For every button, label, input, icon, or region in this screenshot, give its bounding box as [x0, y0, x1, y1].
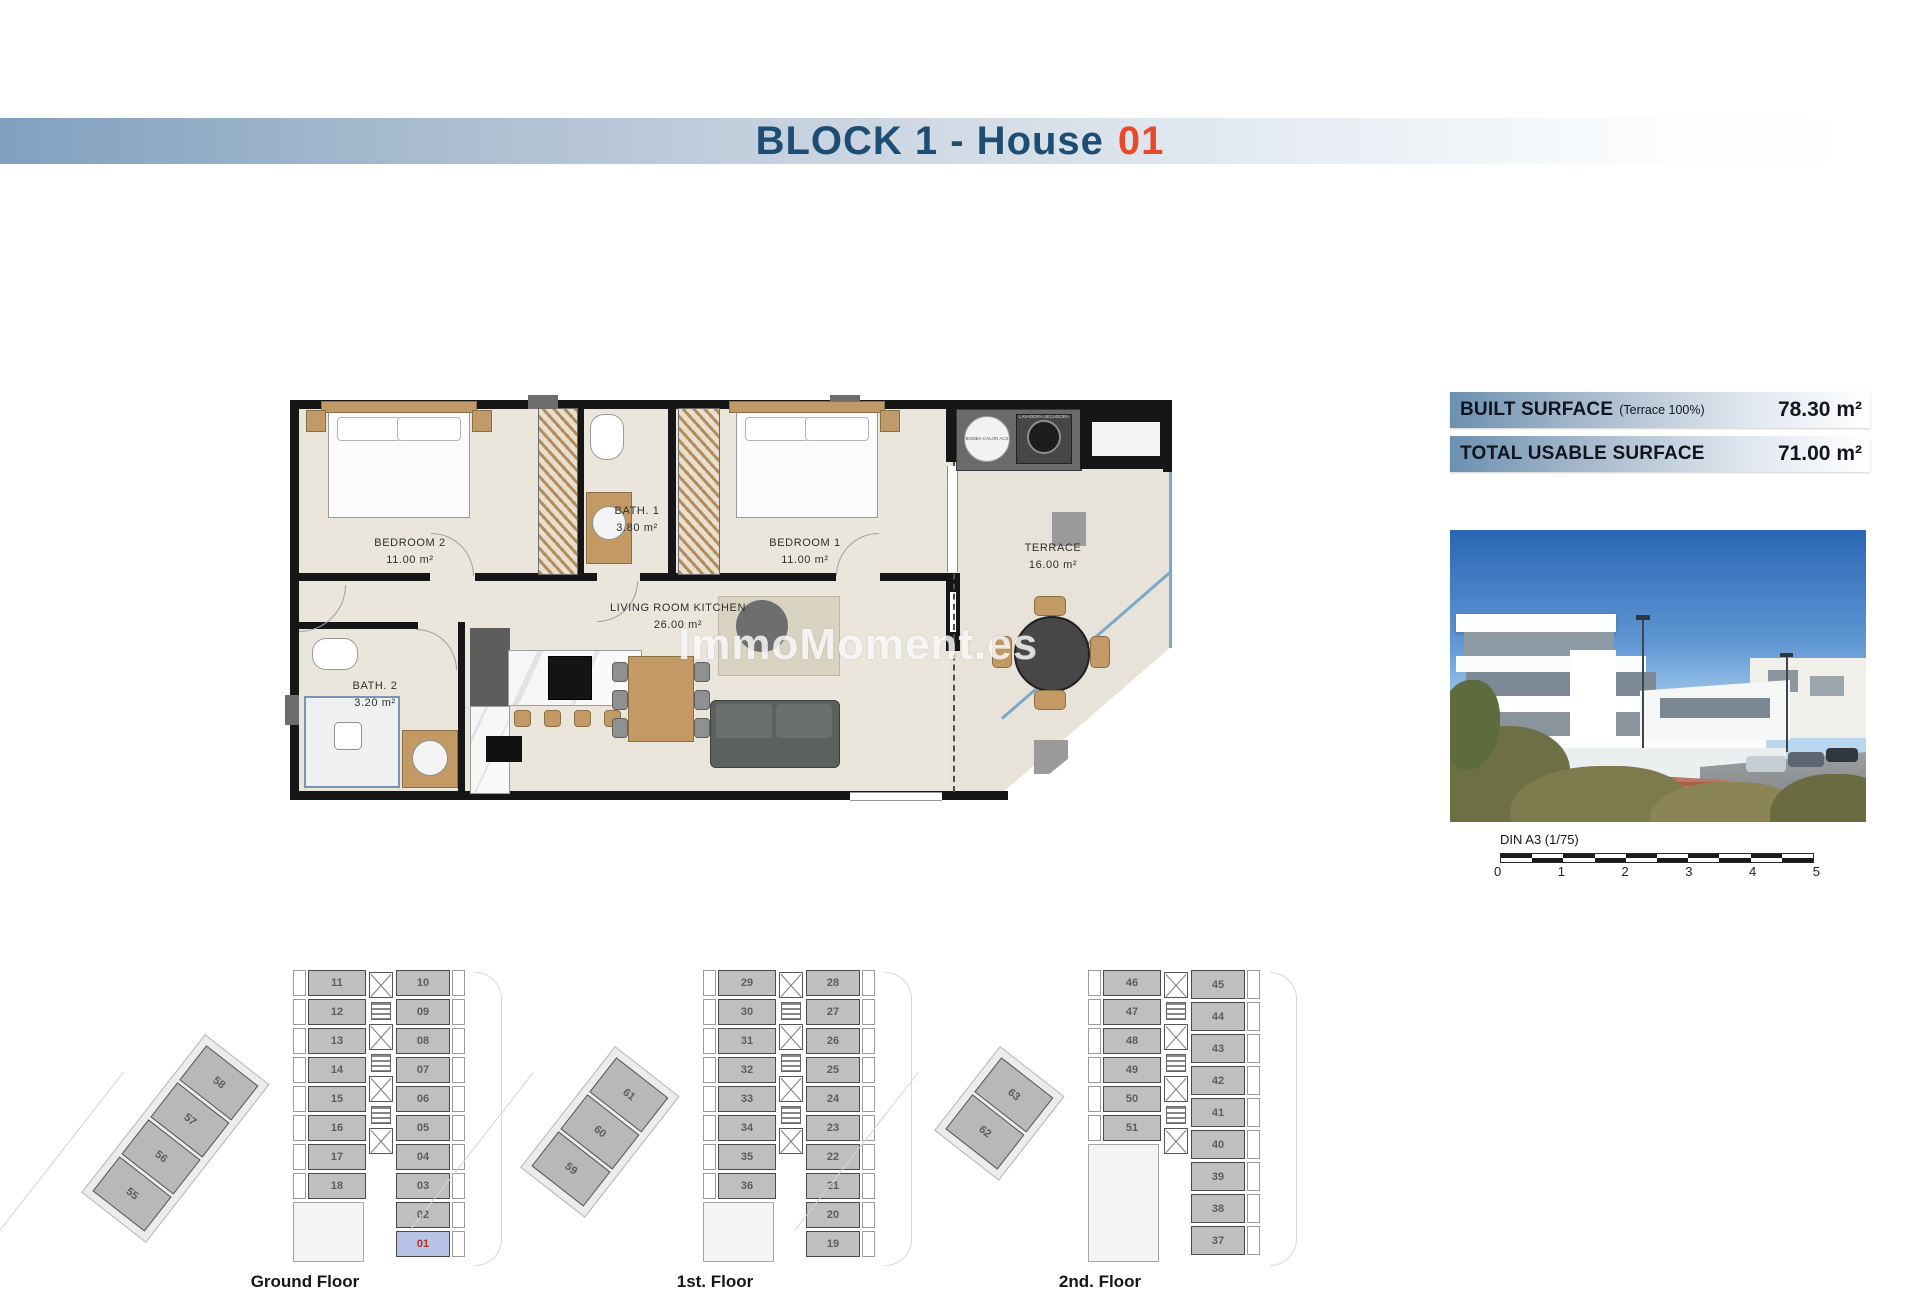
unit-cell[interactable]: 16	[308, 1115, 366, 1141]
unit-row: 13	[293, 1028, 366, 1054]
terrace-stub	[862, 1028, 875, 1054]
terrace-stub	[1247, 1002, 1260, 1031]
stairs-icon	[781, 1106, 801, 1124]
unit-cell[interactable]: 29	[718, 970, 776, 996]
room-name: BATH. 1	[577, 503, 697, 520]
balcony-stub	[293, 1057, 306, 1083]
unit-row: 28	[806, 970, 875, 996]
terrace-stub	[862, 1173, 875, 1199]
elevator-icon	[369, 972, 393, 998]
left-unit-column: 1112131415161718	[293, 970, 366, 1262]
terrace-stub	[452, 1231, 465, 1257]
unit-row: 07	[396, 1057, 465, 1083]
photo-rear-window	[1810, 676, 1844, 696]
built-surface-label: BUILT SURFACE	[1450, 399, 1613, 421]
unit-cell[interactable]: 36	[718, 1173, 776, 1199]
wall-terrace-top	[946, 400, 956, 462]
built-surface-note: (Terrace 100%)	[1619, 403, 1704, 417]
scale-label: DIN A3 (1/75)	[1500, 832, 1579, 847]
chair	[612, 690, 628, 710]
terrace-stub	[452, 1086, 465, 1112]
stairs-icon	[1166, 1106, 1186, 1124]
photo-lamp-pole	[1786, 656, 1788, 752]
unit-row: 34	[703, 1115, 776, 1141]
terrace-stub	[862, 1202, 875, 1228]
toilet-bath2	[312, 638, 358, 670]
page-title-text: BLOCK 1 - House	[756, 119, 1104, 163]
main-floor-plan: BOMBA CALOR ACS LAVADORA SECADORA BEDROO…	[290, 400, 1180, 800]
sliding-door	[947, 466, 958, 572]
unit-row: 29	[703, 970, 776, 996]
usable-surface-label: TOTAL USABLE SURFACE	[1450, 443, 1705, 465]
balcony-stub	[703, 970, 716, 996]
terrace-stub	[1247, 1066, 1260, 1095]
unit-row: 47	[1088, 999, 1161, 1025]
unit-cell[interactable]: 01	[396, 1231, 450, 1257]
unit-row: 42	[1191, 1066, 1260, 1095]
ruler-segment	[1595, 858, 1626, 862]
unit-row: 05	[396, 1115, 465, 1141]
unit-cell[interactable]: 43	[1191, 1034, 1245, 1063]
wardrobe-bedroom1	[678, 408, 720, 575]
room-name: BEDROOM 2	[330, 535, 490, 552]
sink-bath2	[412, 740, 448, 776]
terrace-chair	[1090, 636, 1110, 668]
photo-car	[1788, 752, 1824, 767]
unit-row: 25	[806, 1057, 875, 1083]
bed-pillow	[805, 417, 869, 441]
balcony-stub	[293, 970, 306, 996]
fridge	[470, 628, 510, 708]
unit-row: 50	[1088, 1086, 1161, 1112]
unit-cell[interactable]: 21	[806, 1173, 860, 1199]
terrace-stub	[862, 1086, 875, 1112]
balcony-stub	[293, 1144, 306, 1170]
unit-row: 16	[293, 1115, 366, 1141]
chair	[612, 662, 628, 682]
built-surface-bar: BUILT SURFACE (Terrace 100%) 78.30 m²	[1450, 392, 1870, 428]
unit-row: 39	[1191, 1162, 1260, 1191]
unit-row: 10	[396, 970, 465, 996]
top-margin	[0, 0, 1920, 118]
balcony-stub	[703, 999, 716, 1025]
photo-lamp-head	[1636, 615, 1650, 620]
unit-row: 46	[1088, 970, 1161, 996]
scale-ruler-ticks: 012345	[1494, 864, 1820, 879]
sofa-cushion	[716, 704, 772, 738]
terrace-stub	[1247, 1034, 1260, 1063]
entrance-structure	[1088, 1144, 1159, 1262]
unit-cell[interactable]: 30	[718, 999, 776, 1025]
terrace-stub	[452, 970, 465, 996]
unit-cell[interactable]: 23	[806, 1115, 860, 1141]
bed-pillow	[397, 417, 461, 441]
unit-cell[interactable]: 38	[1191, 1194, 1245, 1223]
stairs-icon	[371, 1054, 391, 1072]
room-area: 11.00 m²	[330, 552, 490, 569]
unit-cell[interactable]: 06	[396, 1086, 450, 1112]
unit-cell[interactable]: 41	[1191, 1098, 1245, 1127]
stairs-icon	[781, 1054, 801, 1072]
floor-central-block: 464748495051454443424140393837	[1088, 970, 1260, 1262]
unit-row: 27	[806, 999, 875, 1025]
unit-row: 15	[293, 1086, 366, 1112]
unit-cell[interactable]: 35	[718, 1144, 776, 1170]
unit-cell[interactable]: 46	[1103, 970, 1161, 996]
wall-bath1-right	[668, 400, 676, 581]
bed-pillow	[337, 417, 401, 441]
unit-row: 18	[293, 1173, 366, 1199]
unit-cell[interactable]: 12	[308, 999, 366, 1025]
core-shaft	[779, 970, 803, 1262]
terrace-stub	[452, 1057, 465, 1083]
wall-bedrooms	[290, 573, 430, 581]
stool	[544, 710, 561, 727]
elevator-icon	[369, 1128, 393, 1154]
unit-cell[interactable]: 50	[1103, 1086, 1161, 1112]
unit-cell[interactable]: 44	[1191, 1002, 1245, 1031]
right-unit-column: 454443424140393837	[1191, 970, 1260, 1262]
unit-row: 26	[806, 1028, 875, 1054]
washer-dryer: LAVADORA SECADORA	[1016, 414, 1072, 464]
room-area: 3.20 m²	[315, 695, 435, 712]
unit-row: 45	[1191, 970, 1260, 999]
left-unit-column: 2930313233343536	[703, 970, 776, 1262]
wall-bedrooms	[880, 573, 954, 581]
photo-lamp-pole	[1642, 618, 1644, 748]
nightstand	[306, 410, 326, 432]
floor-wing: 616059	[520, 1046, 679, 1218]
balcony-stub	[703, 1144, 716, 1170]
terrace-stub	[862, 970, 875, 996]
bed-headboard	[321, 401, 477, 413]
balcony-stub	[293, 999, 306, 1025]
elevator-icon	[369, 1076, 393, 1102]
core-shaft	[1164, 970, 1188, 1262]
room-area: 16.00 m²	[973, 557, 1133, 574]
ruler-segment	[1657, 858, 1688, 862]
balcony-stub	[1088, 970, 1101, 996]
stairs-icon	[371, 1106, 391, 1124]
unit-row: 37	[1191, 1226, 1260, 1255]
unit-row: 20	[806, 1202, 875, 1228]
room-name: TERRACE	[973, 540, 1133, 557]
photo-car	[1826, 748, 1858, 762]
nightstand	[880, 410, 900, 432]
floor-plan-ground: 5857565511121314151617181009080706050403…	[105, 962, 505, 1292]
unit-row: 31	[703, 1028, 776, 1054]
unit-cell[interactable]: 10	[396, 970, 450, 996]
stairs-icon	[371, 1002, 391, 1020]
unit-cell[interactable]: 27	[806, 999, 860, 1025]
unit-cell[interactable]: 31	[718, 1028, 776, 1054]
unit-row: 02	[396, 1202, 465, 1228]
photo-terrace-glass	[1660, 698, 1770, 718]
unit-cell[interactable]: 08	[396, 1028, 450, 1054]
unit-cell[interactable]: 39	[1191, 1162, 1245, 1191]
wall-bath2-right	[458, 622, 465, 792]
balcony-stub	[1088, 999, 1101, 1025]
unit-cell[interactable]: 51	[1103, 1115, 1161, 1141]
unit-row: 17	[293, 1144, 366, 1170]
stool	[574, 710, 591, 727]
unit-cell[interactable]: 49	[1103, 1057, 1161, 1083]
terrace-pillar	[1034, 740, 1068, 774]
floor-wing: 58575655	[81, 1034, 269, 1243]
wall-left	[290, 400, 299, 800]
terrace-stub	[452, 1028, 465, 1054]
unit-cell[interactable]: 34	[718, 1115, 776, 1141]
elevator-icon	[369, 1024, 393, 1050]
unit-row: 09	[396, 999, 465, 1025]
header-band: BLOCK 1 - House01	[0, 118, 1920, 164]
terrace-stub	[1247, 1226, 1260, 1255]
page: { "header": { "title": "BLOCK 1 - House"…	[0, 0, 1920, 1280]
elevator-icon	[1164, 1076, 1188, 1102]
cooktop	[548, 656, 592, 700]
floor-plan-second: 63624647484950514544434241403938372nd. F…	[900, 962, 1300, 1292]
left-unit-column: 464748495051	[1088, 970, 1161, 1262]
unit-row: 01	[396, 1231, 465, 1257]
watermark: ImmoMoment.es	[678, 620, 1038, 670]
floor-label: Ground Floor	[105, 1272, 505, 1292]
floor-central-block: 111213141516171810090807060504030201	[293, 970, 465, 1262]
elevator-icon	[779, 1128, 803, 1154]
stool	[514, 710, 531, 727]
ruler-segment	[1626, 858, 1657, 862]
right-unit-column: 10090807060504030201	[396, 970, 465, 1262]
stairs-icon	[1166, 1002, 1186, 1020]
core-shaft	[369, 970, 393, 1262]
unit-cell[interactable]: 11	[308, 970, 366, 996]
unit-row: 22	[806, 1144, 875, 1170]
ruler-tick: 3	[1685, 864, 1692, 879]
elevator-icon	[779, 972, 803, 998]
unit-row: 06	[396, 1086, 465, 1112]
unit-row: 43	[1191, 1034, 1260, 1063]
photo-roof-slab	[1456, 614, 1616, 632]
window	[850, 792, 942, 801]
site-boundary-arc	[1270, 972, 1297, 1266]
unit-row: 24	[806, 1086, 875, 1112]
chair	[694, 718, 710, 738]
elevator-icon	[1164, 972, 1188, 998]
terrace-stub	[1247, 970, 1260, 999]
room-label-bath1: BATH. 1 3.80 m²	[577, 503, 697, 537]
elevator-icon	[779, 1024, 803, 1050]
page-title: BLOCK 1 - House01	[756, 118, 1165, 164]
unit-row: 21	[806, 1173, 875, 1199]
bed-headboard	[729, 401, 885, 413]
ruler-tick: 4	[1749, 864, 1756, 879]
photo-slab	[1456, 656, 1646, 672]
ruler-segment	[1501, 858, 1532, 862]
terrace-stub	[862, 1057, 875, 1083]
page-title-number: 01	[1118, 119, 1165, 163]
room-label-bath2: BATH. 2 3.20 m²	[315, 678, 435, 712]
unit-row: 40	[1191, 1130, 1260, 1159]
balcony-stub	[703, 1028, 716, 1054]
sofa-cushion	[776, 704, 832, 738]
washer-door	[1027, 420, 1061, 454]
bed-bedroom1	[736, 410, 878, 518]
chair	[694, 690, 710, 710]
room-name: BATH. 2	[315, 678, 435, 695]
closet-window	[1092, 422, 1160, 456]
floor-central-block: 293031323334353628272625242322212019	[703, 970, 875, 1262]
photo-lamp-head	[1780, 653, 1793, 657]
terrace-stub	[1247, 1194, 1260, 1223]
balcony-stub	[293, 1173, 306, 1199]
wardrobe-bedroom2	[538, 408, 578, 575]
unit-cell[interactable]: 47	[1103, 999, 1161, 1025]
ruler-segment	[1532, 858, 1563, 862]
stairs-icon	[1166, 1054, 1186, 1072]
terrace-glass-right	[1169, 470, 1172, 648]
ruler-segment	[1688, 858, 1719, 862]
shower-drain	[334, 722, 362, 750]
balcony-stub	[293, 1028, 306, 1054]
balcony-stub	[293, 1115, 306, 1141]
unit-cell[interactable]: 40	[1191, 1130, 1245, 1159]
ruler-segment	[1563, 858, 1594, 862]
nightstand	[472, 410, 492, 432]
unit-row: 44	[1191, 1002, 1260, 1031]
elevator-icon	[1164, 1024, 1188, 1050]
balcony-stub	[703, 1057, 716, 1083]
balcony-stub	[1088, 1028, 1101, 1054]
stairs-icon	[781, 1002, 801, 1020]
terrace-chair	[1034, 596, 1066, 616]
unit-cell[interactable]: 03	[396, 1173, 450, 1199]
unit-row: 51	[1088, 1115, 1161, 1141]
balcony-stub	[293, 1086, 306, 1112]
usable-surface-value: 71.00 m²	[1778, 442, 1870, 466]
balcony-stub	[703, 1173, 716, 1199]
balcony-stub	[703, 1086, 716, 1112]
unit-row: 19	[806, 1231, 875, 1257]
ruler-segment	[1751, 858, 1782, 862]
terrace-stub	[1247, 1162, 1260, 1191]
floor-label: 2nd. Floor	[900, 1272, 1300, 1292]
balcony-stub	[1088, 1086, 1101, 1112]
room-area: 3.80 m²	[577, 520, 697, 537]
right-unit-column: 28272625242322212019	[806, 970, 875, 1262]
balcony-stub	[1088, 1115, 1101, 1141]
room-name: LIVING ROOM KITCHEN	[588, 600, 768, 617]
unit-cell[interactable]: 25	[806, 1057, 860, 1083]
bed-bedroom2	[328, 410, 470, 518]
unit-cell[interactable]: 33	[718, 1086, 776, 1112]
room-label-terrace: TERRACE 16.00 m²	[973, 540, 1133, 574]
usable-surface-bar: TOTAL USABLE SURFACE 71.00 m²	[1450, 436, 1870, 472]
unit-row: 12	[293, 999, 366, 1025]
toilet-bath1	[590, 414, 624, 460]
unit-cell[interactable]: 09	[396, 999, 450, 1025]
unit-row: 30	[703, 999, 776, 1025]
unit-cell[interactable]: 45	[1191, 970, 1245, 999]
unit-cell[interactable]: 17	[308, 1144, 366, 1170]
terrace-stub	[1247, 1098, 1260, 1127]
site-boundary-arc	[475, 972, 502, 1266]
room-label-bedroom2: BEDROOM 2 11.00 m²	[330, 535, 490, 569]
unit-row: 32	[703, 1057, 776, 1083]
unit-cell[interactable]: 05	[396, 1115, 450, 1141]
terrace-stub	[862, 999, 875, 1025]
elevator-icon	[779, 1076, 803, 1102]
room-name: BEDROOM 1	[725, 535, 885, 552]
tv	[486, 736, 522, 762]
unit-row: 49	[1088, 1057, 1161, 1083]
terrace-stub	[862, 1144, 875, 1170]
unit-cell[interactable]: 07	[396, 1057, 450, 1083]
heat-pump-unit: BOMBA CALOR ACS	[964, 416, 1010, 462]
unit-cell[interactable]: 32	[718, 1057, 776, 1083]
unit-row: 36	[703, 1173, 776, 1199]
unit-row: 08	[396, 1028, 465, 1054]
unit-cell[interactable]: 26	[806, 1028, 860, 1054]
terrace-stub	[452, 1202, 465, 1228]
room-label-bedroom1: BEDROOM 1 11.00 m²	[725, 535, 885, 569]
ruler-tick: 2	[1622, 864, 1629, 879]
wall-pillar	[528, 395, 558, 409]
floor-wing: 6362	[934, 1046, 1064, 1181]
unit-row: 14	[293, 1057, 366, 1083]
room-area: 11.00 m²	[725, 552, 885, 569]
built-surface-value: 78.30 m²	[1778, 398, 1870, 422]
unit-row: 11	[293, 970, 366, 996]
floor-label: 1st. Floor	[515, 1272, 915, 1292]
unit-cell[interactable]: 28	[806, 970, 860, 996]
unit-cell[interactable]: 15	[308, 1086, 366, 1112]
unit-row: 38	[1191, 1194, 1260, 1223]
ruler-tick: 5	[1813, 864, 1820, 879]
building-photo	[1450, 530, 1866, 822]
unit-cell[interactable]: 18	[308, 1173, 366, 1199]
unit-cell[interactable]: 04	[396, 1144, 450, 1170]
unit-row: 23	[806, 1115, 875, 1141]
ruler-segment	[1719, 858, 1750, 862]
entrance-structure	[293, 1202, 364, 1262]
unit-row: 35	[703, 1144, 776, 1170]
unit-cell[interactable]: 02	[396, 1202, 450, 1228]
terrace-stub	[452, 1173, 465, 1199]
unit-cell[interactable]: 42	[1191, 1066, 1245, 1095]
unit-cell[interactable]: 14	[308, 1057, 366, 1083]
terrace-chair	[1034, 690, 1066, 710]
terrace-stub	[862, 1231, 875, 1257]
unit-row: 04	[396, 1144, 465, 1170]
terrace-stub	[452, 999, 465, 1025]
terrace-stub	[1247, 1130, 1260, 1159]
chair	[612, 718, 628, 738]
elevator-icon	[1164, 1128, 1188, 1154]
unit-cell[interactable]: 24	[806, 1086, 860, 1112]
floor-plan-first: 6160592930313233343536282726252423222120…	[515, 962, 915, 1292]
ruler-tick: 0	[1494, 864, 1501, 879]
unit-row: 33	[703, 1086, 776, 1112]
unit-row: 48	[1088, 1028, 1161, 1054]
ruler-segment	[1782, 858, 1813, 862]
unit-cell[interactable]: 13	[308, 1028, 366, 1054]
ruler-tick: 1	[1558, 864, 1565, 879]
unit-cell[interactable]: 48	[1103, 1028, 1161, 1054]
wall-pillar	[285, 695, 299, 725]
unit-cell[interactable]: 37	[1191, 1226, 1245, 1255]
scale-ruler	[1500, 853, 1814, 863]
entrance-structure	[703, 1202, 774, 1262]
unit-cell[interactable]: 19	[806, 1231, 860, 1257]
